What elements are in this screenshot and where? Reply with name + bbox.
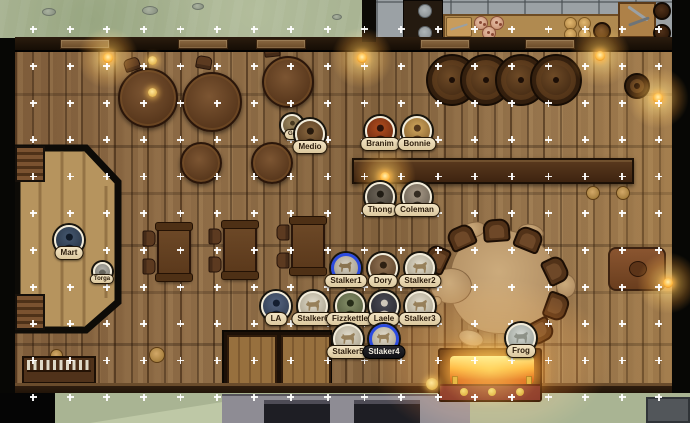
- token-torga[interactable]: Torga: [93, 262, 112, 281]
- token-nameplate: Stalker1: [324, 274, 367, 288]
- token-mart[interactable]: Mart: [54, 225, 84, 255]
- token-medio[interactable]: Medio: [295, 119, 325, 149]
- token-stalker5[interactable]: Stalker5: [333, 324, 363, 354]
- token-nameplate: Torga: [90, 274, 114, 285]
- token-nameplate: Frog: [506, 344, 536, 358]
- token-nameplate: Dory: [368, 274, 398, 288]
- token-nameplate: Stalker3: [398, 312, 441, 326]
- vtt-map-canvas[interactable]: GaMedioBranimBonnieThongColemanStalker1D…: [0, 0, 690, 423]
- token-stalker2[interactable]: Stalker2: [405, 253, 435, 283]
- token-nameplate: Bonnie: [397, 137, 436, 151]
- token-layer: GaMedioBranimBonnieThongColemanStalker1D…: [0, 0, 690, 423]
- token-nameplate: Medio: [292, 140, 327, 154]
- token-bonnie[interactable]: Bonnie: [402, 116, 432, 146]
- token-nameplate: Stalker2: [398, 274, 441, 288]
- token-stalker3[interactable]: Stalker3: [405, 291, 435, 321]
- token-nameplate: Thong: [362, 203, 398, 217]
- token-stlaker4[interactable]: Stlaker4: [369, 324, 399, 354]
- token-frog[interactable]: Frog: [506, 323, 536, 353]
- token-fizzkettle[interactable]: Fizzkettle: [335, 291, 365, 321]
- token-branim[interactable]: Branim: [365, 116, 395, 146]
- token-stalker6[interactable]: Stalker6: [298, 291, 328, 321]
- token-nameplate: LA: [265, 312, 288, 326]
- token-thong[interactable]: Thong: [365, 182, 395, 212]
- token-nameplate: Branim: [360, 137, 400, 151]
- token-nameplate: Mart: [55, 246, 84, 260]
- token-la[interactable]: LA: [261, 291, 291, 321]
- token-stalker1[interactable]: Stalker1: [331, 253, 361, 283]
- token-laele[interactable]: Laele: [369, 291, 399, 321]
- token-nameplate: Coleman: [394, 203, 440, 217]
- token-dory[interactable]: Dory: [368, 253, 398, 283]
- token-nameplate: Stlaker4: [362, 345, 405, 359]
- token-coleman[interactable]: Coleman: [402, 182, 432, 212]
